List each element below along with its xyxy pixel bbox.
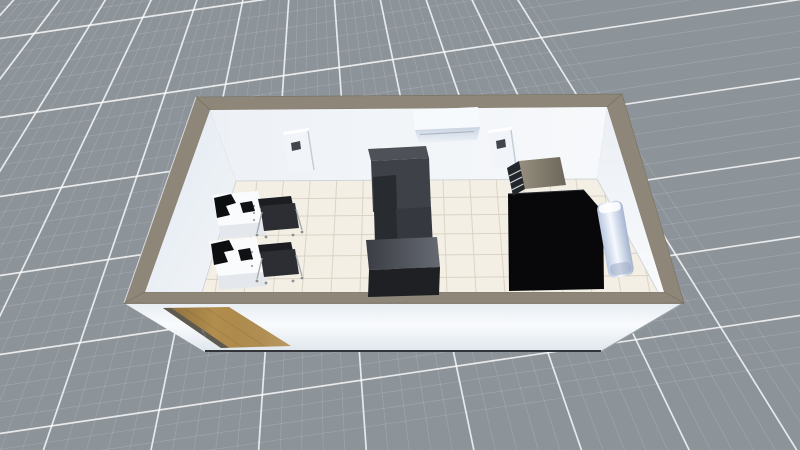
center-unit-counter-top (366, 237, 440, 270)
center-unit-counter-front (368, 267, 440, 297)
black-counter[interactable] (508, 190, 604, 291)
desk-workstation-1[interactable] (212, 191, 267, 239)
center-cabinet-unit[interactable] (366, 146, 440, 297)
center-unit-inset (373, 175, 398, 244)
chair-seat (260, 203, 299, 231)
scene-canvas[interactable] (0, 0, 800, 450)
wall-panel-right[interactable] (488, 127, 516, 169)
planner-3d-viewport[interactable] (0, 0, 800, 450)
chair-seat (260, 249, 299, 277)
ac-unit[interactable] (413, 107, 480, 143)
room[interactable] (124, 94, 684, 352)
corner-cabinet-top (519, 157, 566, 189)
black-counter-surface (508, 190, 604, 291)
ac-body (413, 107, 480, 130)
